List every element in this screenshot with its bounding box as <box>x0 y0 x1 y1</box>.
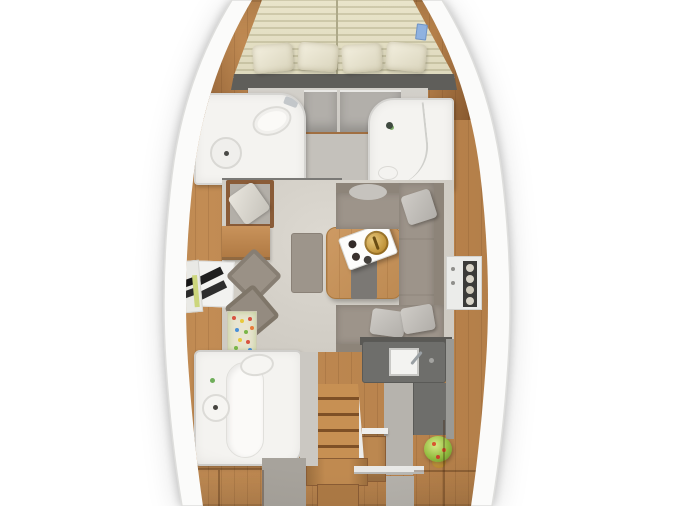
blue-book <box>415 23 428 40</box>
floor-plan-canvas <box>0 0 675 506</box>
galley-floor <box>384 383 413 475</box>
berth-pillow <box>341 43 383 74</box>
bottle-caps <box>466 264 474 272</box>
wardrobe-port <box>304 90 337 134</box>
washbasin <box>210 137 242 169</box>
shower-drain <box>386 122 393 129</box>
plant-foliage <box>424 436 452 462</box>
settee-cushion <box>227 181 271 225</box>
wood-seam <box>262 470 264 506</box>
toilet <box>248 101 295 141</box>
forward-settee <box>226 180 274 228</box>
shower-floor-ring <box>378 166 398 180</box>
coffee-cups <box>347 239 357 249</box>
flower-bouquet <box>232 316 236 320</box>
wood-seam <box>443 420 445 506</box>
shelf-trim <box>192 275 200 307</box>
berth-pillow <box>252 42 294 73</box>
gold-plate <box>361 228 392 259</box>
berth-pillow <box>385 41 427 72</box>
starboard-shower-room <box>368 98 454 190</box>
shower-column <box>226 362 264 458</box>
salon-bench <box>291 233 323 293</box>
aft-corridor-floor <box>300 352 318 466</box>
port-head-room <box>194 93 306 185</box>
galley-side-panel <box>446 339 454 439</box>
handrail-ledge <box>362 428 388 434</box>
flower-side-table <box>227 311 257 353</box>
stove-knob <box>429 358 434 363</box>
aft-head-room <box>194 350 302 466</box>
toilet <box>202 394 230 422</box>
galley-aft-counter <box>413 383 446 435</box>
latch-knobs <box>451 267 455 271</box>
lower-step-column <box>317 484 359 506</box>
aft-floor-shadow <box>262 458 306 506</box>
sofa-pillow <box>400 303 436 334</box>
wood-seam <box>218 470 220 506</box>
bottle-rack <box>446 256 482 310</box>
soap-dish <box>210 378 215 383</box>
berth-pillow <box>297 42 339 73</box>
plant-flowers <box>432 442 436 446</box>
sofa-headrest <box>349 184 387 200</box>
galley-counter <box>362 341 446 383</box>
aft-floor-patch <box>386 476 414 506</box>
flower-pot <box>424 436 454 468</box>
companionway-steps <box>312 384 364 460</box>
